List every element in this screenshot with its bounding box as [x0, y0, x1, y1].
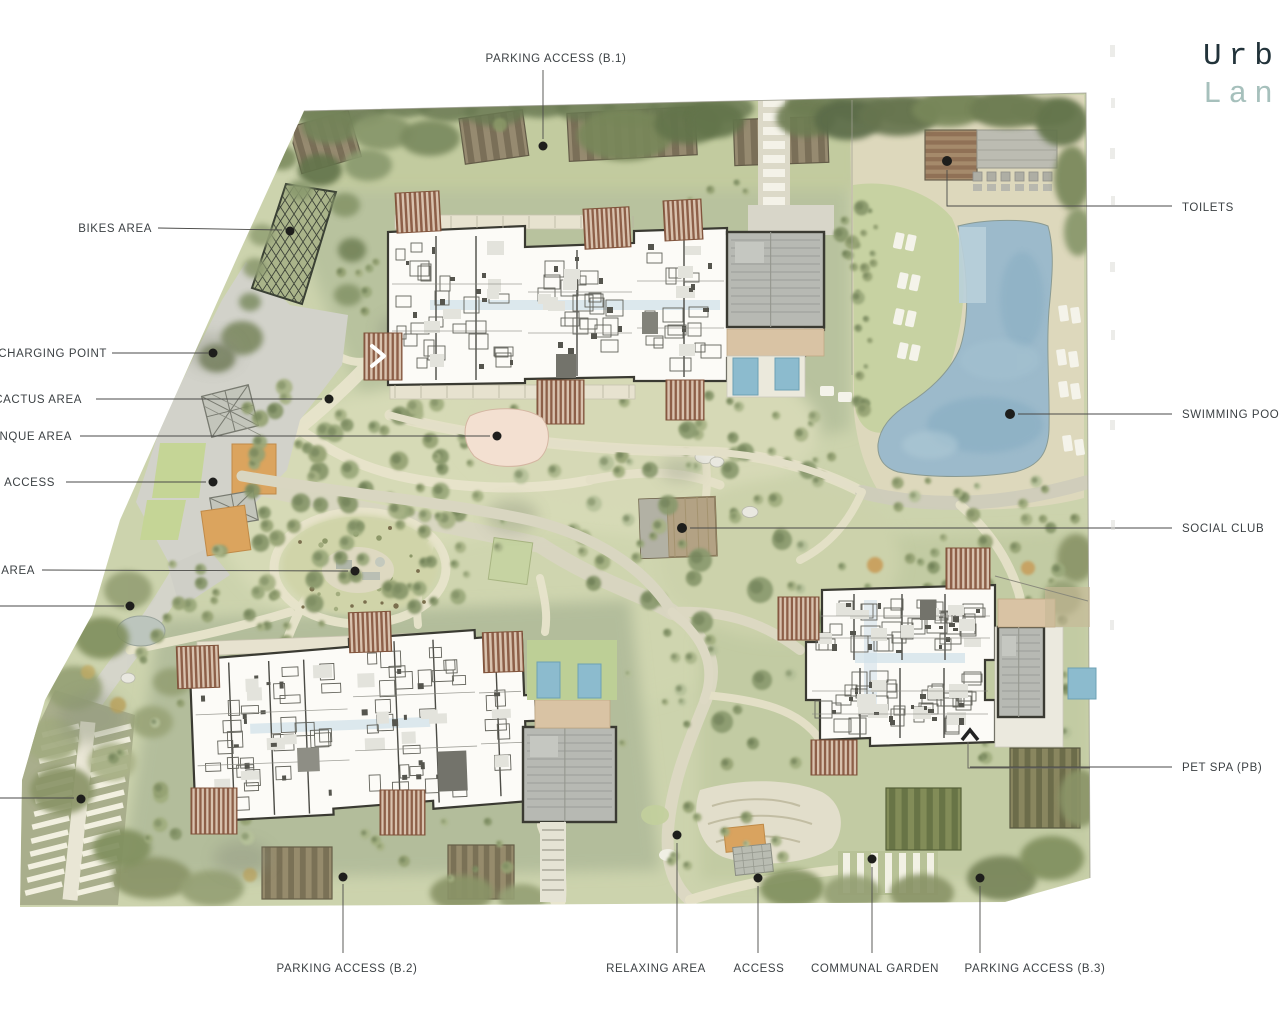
- svg-text:ACCESS: ACCESS: [4, 477, 55, 489]
- svg-text:CHARGING POINT: CHARGING POINT: [0, 348, 107, 360]
- svg-text:COMMUNAL GARDEN: COMMUNAL GARDEN: [811, 963, 939, 975]
- svg-text:Landscape: Landscape: [1203, 77, 1280, 112]
- svg-text:ANQUE AREA: ANQUE AREA: [0, 431, 72, 443]
- svg-text:PET SPA (PB): PET SPA (PB): [1182, 762, 1262, 774]
- svg-text:TOILETS: TOILETS: [1182, 202, 1234, 214]
- svg-text:Urban: Urban: [1203, 39, 1280, 74]
- svg-text:ACCESS: ACCESS: [734, 963, 785, 975]
- svg-text:CACTUS AREA: CACTUS AREA: [0, 394, 82, 406]
- svg-text:PARKING ACCESS (B.2): PARKING ACCESS (B.2): [277, 963, 418, 975]
- svg-text:RELAXING AREA: RELAXING AREA: [606, 963, 706, 975]
- svg-text:AREA: AREA: [1, 565, 35, 577]
- svg-text:SWIMMING POOL: SWIMMING POOL: [1182, 409, 1280, 421]
- svg-text:PARKING ACCESS (B.1): PARKING ACCESS (B.1): [486, 53, 627, 65]
- svg-text:PARKING ACCESS (B.3): PARKING ACCESS (B.3): [965, 963, 1106, 975]
- svg-text:SOCIAL CLUB: SOCIAL CLUB: [1182, 523, 1264, 535]
- svg-text:BIKES AREA: BIKES AREA: [78, 223, 152, 235]
